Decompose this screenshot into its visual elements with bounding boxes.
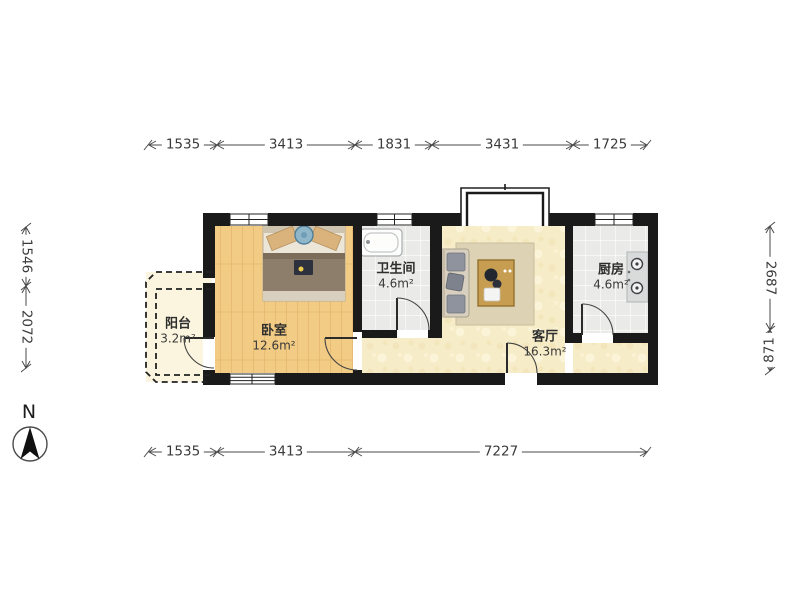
balcony-area: 3.2m² [160, 332, 196, 346]
floorplan-canvas: 1535 3413 1831 3431 1725 1535 3413 7227 … [0, 0, 800, 600]
stove [627, 252, 648, 302]
north-arrow-icon [13, 427, 47, 461]
dim-bottom-2: 7227 [480, 445, 522, 460]
bedroom-top-window [230, 214, 268, 225]
bed [263, 223, 345, 301]
dim-left-0: 1546 [19, 235, 34, 277]
living-name: 客厅 [523, 330, 566, 345]
bathtub [360, 229, 402, 256]
dim-top-4: 1725 [589, 138, 631, 153]
room-label-living: 客厅 16.3m² [523, 330, 566, 359]
hallway-floor [360, 338, 444, 373]
bathroom-area: 4.6m² [376, 277, 415, 291]
floorplan-drawing [0, 0, 800, 600]
dim-right-0: 2687 [763, 257, 778, 299]
bedroom-area: 12.6m² [252, 339, 295, 353]
dim-top-1: 3413 [265, 138, 307, 153]
dim-top-3: 3431 [481, 138, 523, 153]
entry-floor [573, 343, 648, 373]
dim-bottom-1: 3413 [265, 445, 307, 460]
coffee-table [478, 260, 514, 306]
kitchen-window [595, 214, 633, 225]
dim-top-0: 1535 [162, 138, 204, 153]
living-area: 16.3m² [523, 345, 566, 359]
kitchen-name: 厨房 [593, 263, 629, 278]
kitchen-area: 4.6m² [593, 278, 629, 292]
room-label-balcony: 阳台 3.2m² [160, 317, 196, 346]
dim-right-1: 871 [763, 333, 778, 367]
bedroom-bottom-window [230, 374, 275, 384]
room-label-bathroom: 卫生间 4.6m² [376, 262, 415, 291]
bathroom-name: 卫生间 [376, 262, 415, 277]
bedroom-name: 卧室 [252, 324, 295, 339]
bay-window [461, 184, 549, 226]
room-label-kitchen: 厨房 4.6m² [593, 263, 629, 292]
sofa [439, 249, 469, 317]
balcony-name: 阳台 [160, 317, 196, 332]
bathroom-window [377, 214, 412, 225]
compass-n-label: N [22, 401, 36, 423]
dim-top-2: 1831 [373, 138, 415, 153]
dim-bottom-0: 1535 [162, 445, 204, 460]
room-label-bedroom: 卧室 12.6m² [252, 324, 295, 353]
dim-left-1: 2072 [19, 306, 34, 348]
